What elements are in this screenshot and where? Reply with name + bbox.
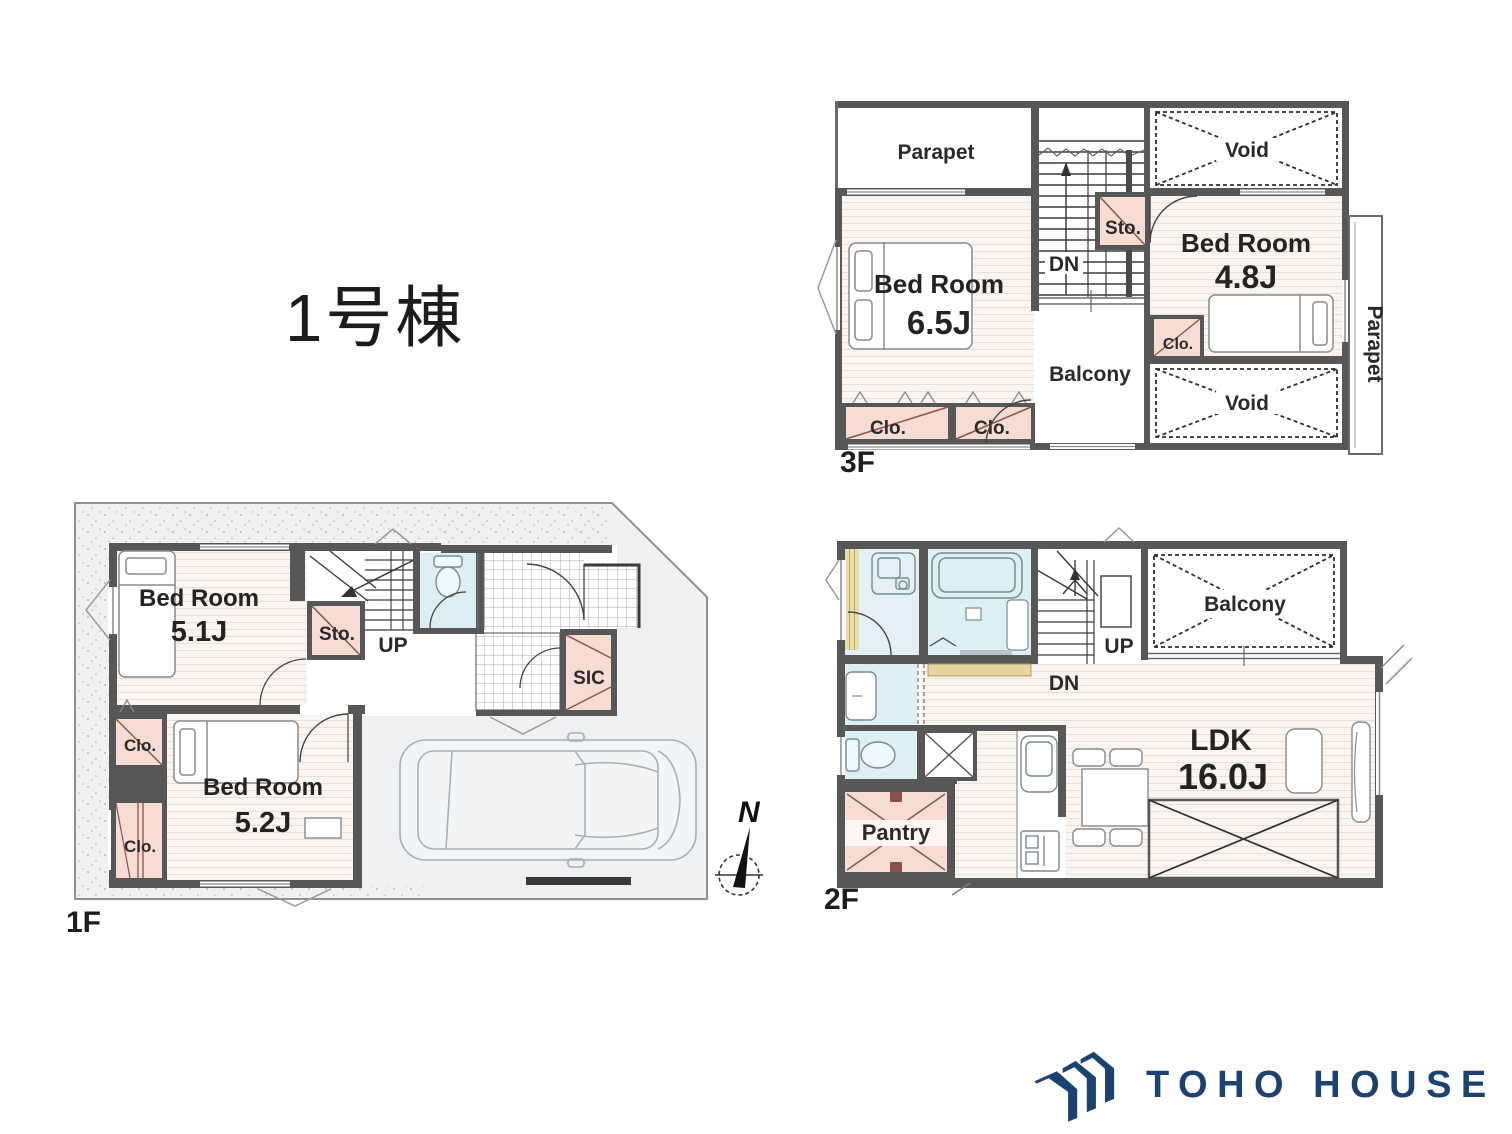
svg-text:Sto.: Sto. — [319, 624, 355, 645]
svg-text:Clo.: Clo. — [1163, 336, 1193, 353]
svg-text:Pantry: Pantry — [862, 820, 931, 845]
svg-text:Clo.: Clo. — [870, 418, 906, 439]
svg-text:LDK: LDK — [1190, 724, 1252, 757]
svg-text:2F: 2F — [824, 883, 859, 916]
svg-text:6.5J: 6.5J — [907, 304, 971, 341]
svg-text:Bed Room: Bed Room — [139, 585, 259, 612]
svg-text:4.8J: 4.8J — [1215, 259, 1277, 295]
svg-text:Bed Room: Bed Room — [203, 774, 323, 801]
svg-text:5.1J: 5.1J — [171, 616, 227, 648]
svg-text:Parapet: Parapet — [897, 141, 974, 164]
svg-text:SIC: SIC — [573, 668, 605, 689]
svg-text:Balcony: Balcony — [1204, 593, 1286, 616]
svg-text:Sto.: Sto. — [1105, 218, 1141, 239]
svg-text:1F: 1F — [66, 906, 101, 939]
svg-text:16.0J: 16.0J — [1178, 756, 1268, 797]
svg-text:UP: UP — [378, 634, 407, 657]
svg-text:Bed Room: Bed Room — [874, 269, 1004, 299]
svg-text:Balcony: Balcony — [1049, 363, 1131, 386]
svg-text:3F: 3F — [840, 446, 875, 479]
svg-text:5.2J: 5.2J — [235, 807, 291, 839]
svg-text:DN: DN — [1049, 672, 1079, 695]
svg-text:N: N — [738, 796, 761, 829]
svg-text:Parapet: Parapet — [1363, 305, 1386, 382]
svg-text:DN: DN — [1049, 253, 1079, 276]
svg-text:Clo.: Clo. — [124, 736, 156, 755]
svg-text:TOHO HOUSE: TOHO HOUSE — [1146, 1064, 1496, 1106]
svg-text:UP: UP — [1104, 635, 1133, 658]
svg-text:Clo.: Clo. — [124, 837, 156, 856]
svg-text:Void: Void — [1225, 392, 1269, 415]
svg-text:Bed Room: Bed Room — [1181, 228, 1311, 258]
svg-text:1号棟: 1号棟 — [285, 281, 465, 356]
svg-text:Void: Void — [1225, 139, 1269, 162]
